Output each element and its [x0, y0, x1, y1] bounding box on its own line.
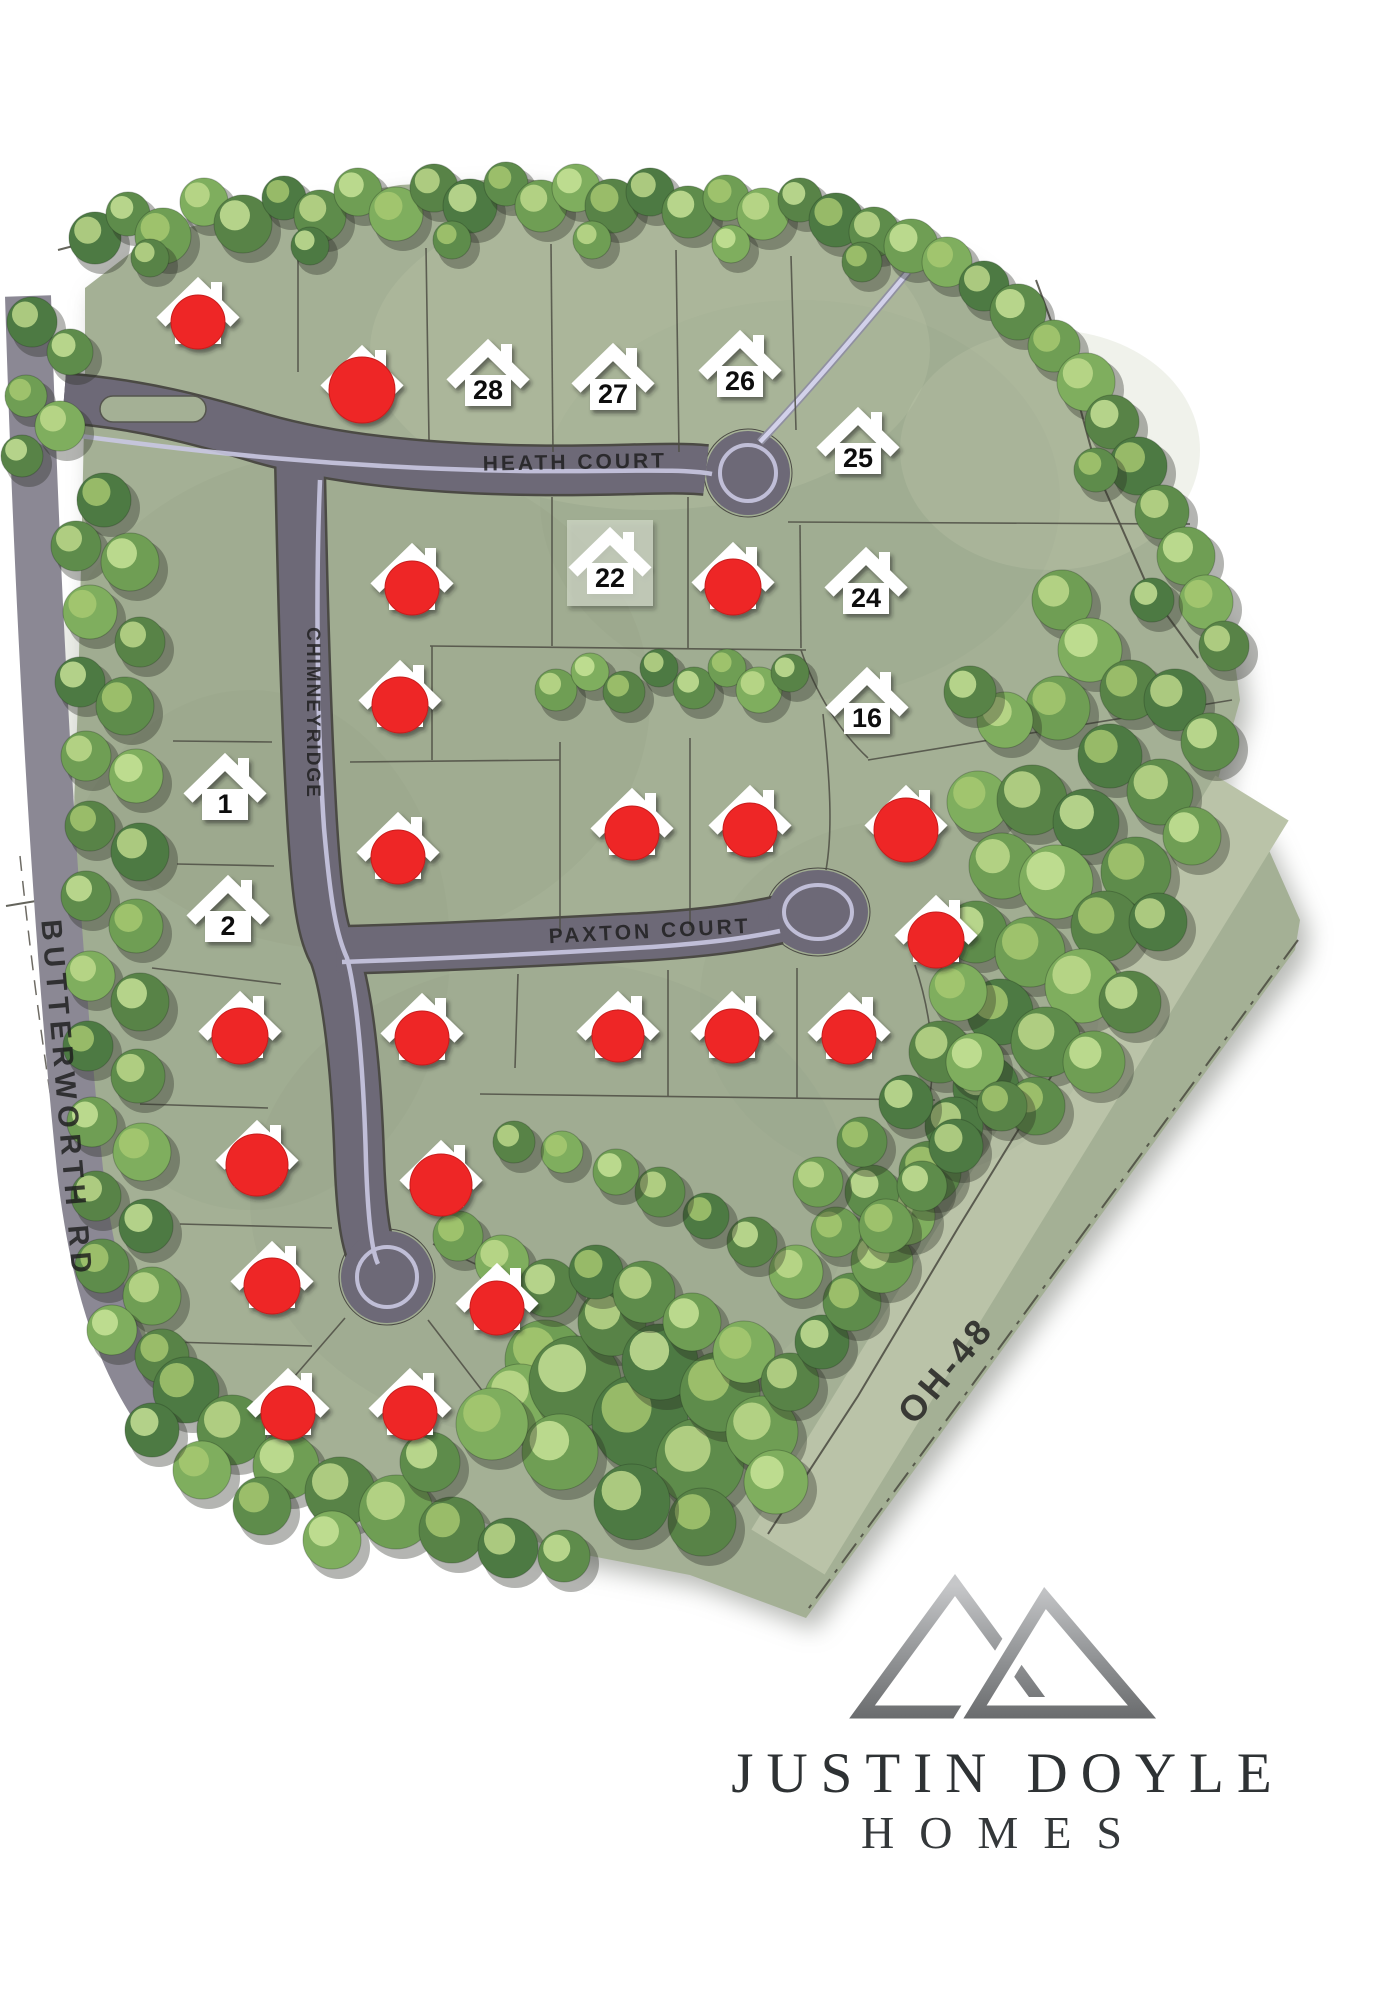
- sold-dot-icon: [874, 798, 938, 862]
- sold-dot-icon: [410, 1154, 472, 1216]
- logo-homes: HOMES: [861, 1807, 1147, 1858]
- sold-dot-icon: [822, 1010, 876, 1064]
- sold-dot-icon: [383, 1386, 437, 1440]
- logo-name: JUSTIN DOYLE: [731, 1742, 1284, 1805]
- street-label-chimneyridge: CHIMNEYRIDGE: [302, 627, 323, 799]
- logo-mountains-icon: [862, 1585, 1142, 1712]
- lot-number: 24: [851, 583, 881, 613]
- lot-marker-available-22[interactable]: 22: [567, 520, 653, 606]
- sold-dot-icon: [705, 1009, 759, 1063]
- lot-number: 25: [843, 443, 873, 473]
- sold-dot-icon: [171, 295, 225, 349]
- lot-number: 2: [220, 911, 235, 941]
- sold-dot-icon: [226, 1134, 288, 1196]
- lot-number: 28: [473, 375, 503, 405]
- sold-dot-icon: [395, 1011, 449, 1065]
- lot-number: 1: [217, 789, 232, 819]
- sold-dot-icon: [329, 357, 395, 423]
- street-label-heath-court: HEATH COURT: [483, 449, 668, 475]
- sold-dot-icon: [605, 806, 659, 860]
- site-plan-page: HEATH COURTPAXTON COURTCHIMNEYRIDGEBUTTE…: [0, 0, 1400, 2000]
- sold-dot-icon: [371, 830, 425, 884]
- entrance-median-island: [100, 396, 206, 422]
- lot-number: 16: [852, 703, 882, 733]
- sold-dot-icon: [470, 1281, 524, 1335]
- sold-dot-icon: [592, 1010, 644, 1062]
- sold-dot-icon: [212, 1008, 268, 1064]
- lot-number: 26: [725, 366, 755, 396]
- lot-number: 27: [598, 379, 628, 409]
- site-plan-map: HEATH COURTPAXTON COURTCHIMNEYRIDGEBUTTE…: [0, 0, 1400, 2000]
- sold-dot-icon: [244, 1258, 300, 1314]
- sold-dot-icon: [908, 912, 964, 968]
- lot-number: 22: [595, 563, 625, 593]
- sold-dot-icon: [723, 803, 777, 857]
- sold-dot-icon: [372, 677, 428, 733]
- sold-dot-icon: [261, 1386, 315, 1440]
- sold-dot-icon: [705, 559, 761, 615]
- sold-dot-icon: [385, 561, 439, 615]
